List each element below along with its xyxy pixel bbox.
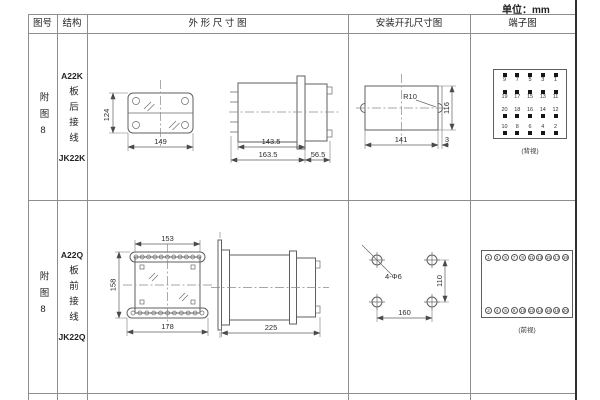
terminal-pin: 13 [537,90,548,100]
dim-side-outer: 163.5 [259,150,278,159]
glass-hatch-marks [149,273,188,301]
row2-figure-no: 附图8 [36,271,50,322]
row2-terminal-caption: (前视) [481,324,573,334]
terminal-pin: 18 [512,108,523,118]
dim-front-top-width: 153 [161,234,174,243]
row2-front-view: 153 158 178 [109,234,213,336]
dim-edge-offset: 3 [445,135,449,144]
terminal-pin: 4 [537,125,548,135]
terminal-pin-dot [528,114,532,118]
terminal-circle: 3 [494,254,501,261]
terminal-pin: 7 [512,73,523,83]
row1-outline-drawing: 124 149 143.5 163.5 56.5 [87,34,348,200]
table-border-top [28,14,577,15]
glass-hatch-marks [144,102,180,130]
header-terminal: 端子图 [470,17,575,31]
terminal-pin: 17 [512,90,523,100]
header-structure: 结构 [57,17,87,31]
terminal-circle: 1 [485,254,492,261]
row1-terminal-diagram: 9753119171513112018161412108642 [493,69,567,139]
terminal-row: 2018161412 [499,108,561,118]
terminal-pin: 20 [499,108,510,118]
terminal-pin: 14 [537,108,548,118]
terminal-pin-number: 8 [516,125,519,130]
terminal-pin-number: 17 [514,95,520,100]
terminal-pin-number: 4 [541,125,544,130]
terminal-pin: 10 [499,125,510,135]
row1-relay-model: JK22K [59,153,85,163]
dim-hole-spec: 4-Φ6 [385,272,402,281]
row1-mounting-drawing: R10 141 3 116 [348,34,470,200]
terminal-pin: 6 [525,125,536,135]
terminal-circle: 16 [545,307,552,314]
terminal-pin-dot [541,131,545,135]
terminal-pin-dot [528,131,532,135]
terminal-circle: 8 [511,307,518,314]
row2-side-view: 225 [211,232,329,338]
terminal-pin: 15 [525,90,536,100]
dim-side-depth: 56.5 [311,150,326,159]
row1-figure-cell: 附图8 [28,34,57,200]
dim-hole-width: 160 [398,308,411,317]
terminal-pin-number: 16 [527,108,533,113]
terminal-circle: 20 [562,307,569,314]
terminal-pin-dot [503,114,507,118]
terminal-pin-number: 6 [528,125,531,130]
terminal-circle: 17 [553,254,560,261]
row2-outline-drawing: 153 158 178 225 [87,200,348,392]
row1-front-view: 124 149 [102,80,193,151]
row2-terminal-diagram: 135791113151719 2468101214161820 [481,250,573,318]
terminal-pin-number: 11 [553,95,559,100]
row1-figure-no: 附图8 [36,92,50,143]
terminal-pin-number: 20 [501,108,507,113]
terminal-pin-number: 15 [527,95,533,100]
terminal-pin: 12 [550,108,561,118]
terminal-pin-number: 13 [540,95,546,100]
dim-cutout-width: 141 [395,135,408,144]
terminal-pin: 5 [525,73,536,83]
dim-front-width: 149 [154,137,167,146]
terminal-pin: 9 [499,73,510,83]
terminal-pin-number: 19 [501,95,507,100]
dim-hole-height: 110 [435,275,444,287]
terminal-circle: 10 [519,307,526,314]
terminal-pin-dot [503,131,507,135]
terminal-pin: 2 [550,125,561,135]
row2-model: A22Q [61,250,83,260]
terminal-pin-number: 5 [528,78,531,83]
row2-relay-model: JK22Q [59,332,86,342]
table-border-right [575,0,577,400]
dim-front-height: 124 [102,109,111,122]
terminal-pin: 16 [525,108,536,118]
hole-leader-line [362,245,392,275]
terminal-pin-number: 7 [516,78,519,83]
terminal-pin: 8 [512,125,523,135]
terminal-pin-dot [515,131,519,135]
row1-wiring: 板后接线 [65,86,79,148]
terminal-circle: 18 [553,307,560,314]
row1-side-view: 143.5 163.5 56.5 [229,76,339,163]
terminal-circle: 7 [511,254,518,261]
terminal-pin: 3 [537,73,548,83]
terminal-circle: 6 [502,307,509,314]
terminal-row: 97531 [499,73,561,83]
col-divider-4 [470,14,471,400]
terminal-pin-number: 3 [541,78,544,83]
header-figure-no: 图号 [28,17,57,31]
row1-model: A22K [61,71,83,81]
terminal-bottom-row: 2468101214161820 [485,307,569,314]
terminal-row: 108642 [499,125,561,135]
table-row2-divider [28,393,577,394]
terminal-pin-number: 14 [540,108,546,113]
terminal-pin-number: 2 [554,125,557,130]
terminal-pin-number: 12 [552,108,558,113]
terminal-top-row: 135791113151719 [485,254,569,261]
terminal-circle: 12 [528,307,535,314]
dim-front-height: 158 [109,279,118,292]
terminal-pin: 1 [550,73,561,83]
terminal-circle: 11 [528,254,535,261]
row2-mounting-drawing: 4-Φ6 160 110 [348,200,470,392]
terminal-circle: 13 [536,254,543,261]
terminal-circle: 4 [494,307,501,314]
terminal-pin-number: 18 [514,108,520,113]
terminal-row: 1917151311 [499,90,561,100]
terminal-circle: 19 [562,254,569,261]
dim-side-inner: 143.5 [262,137,281,146]
row1-terminal-caption: (背视) [493,145,567,155]
terminal-pin-dot [515,114,519,118]
terminal-circle: 14 [536,307,543,314]
terminal-pin-number: 1 [554,78,557,83]
terminal-pin-dot [554,131,558,135]
catalog-page: 单位：mm 图号 结构 外 形 尺 寸 图 安装开孔尺寸图 端子图 附图8 A2… [0,0,600,400]
row1-structure-cell: A22K 板后接线 JK22K [57,34,87,200]
row2-figure-cell: 附图8 [28,200,57,392]
terminal-pin-number: 10 [501,125,507,130]
header-outline: 外 形 尺 寸 图 [87,17,348,31]
terminal-pin: 19 [499,90,510,100]
dim-cutout-height: 116 [442,102,451,114]
terminal-circle: 9 [519,254,526,261]
terminal-pin-dot [541,114,545,118]
terminal-pin-dot [554,114,558,118]
row2-structure-cell: A22Q 板前接线 JK22Q [57,200,87,392]
dim-notch-radius: R10 [403,92,417,101]
terminal-circle: 2 [485,307,492,314]
dim-front-width: 178 [161,322,174,331]
terminal-circle: 15 [545,254,552,261]
terminal-pin-number: 9 [503,78,506,83]
mounting-holes [369,252,440,310]
terminal-pin: 11 [550,90,561,100]
terminal-circle: 5 [502,254,509,261]
header-mounting: 安装开孔尺寸图 [348,17,470,31]
row2-wiring: 板前接线 [65,265,79,327]
dim-side-depth: 225 [265,323,278,332]
